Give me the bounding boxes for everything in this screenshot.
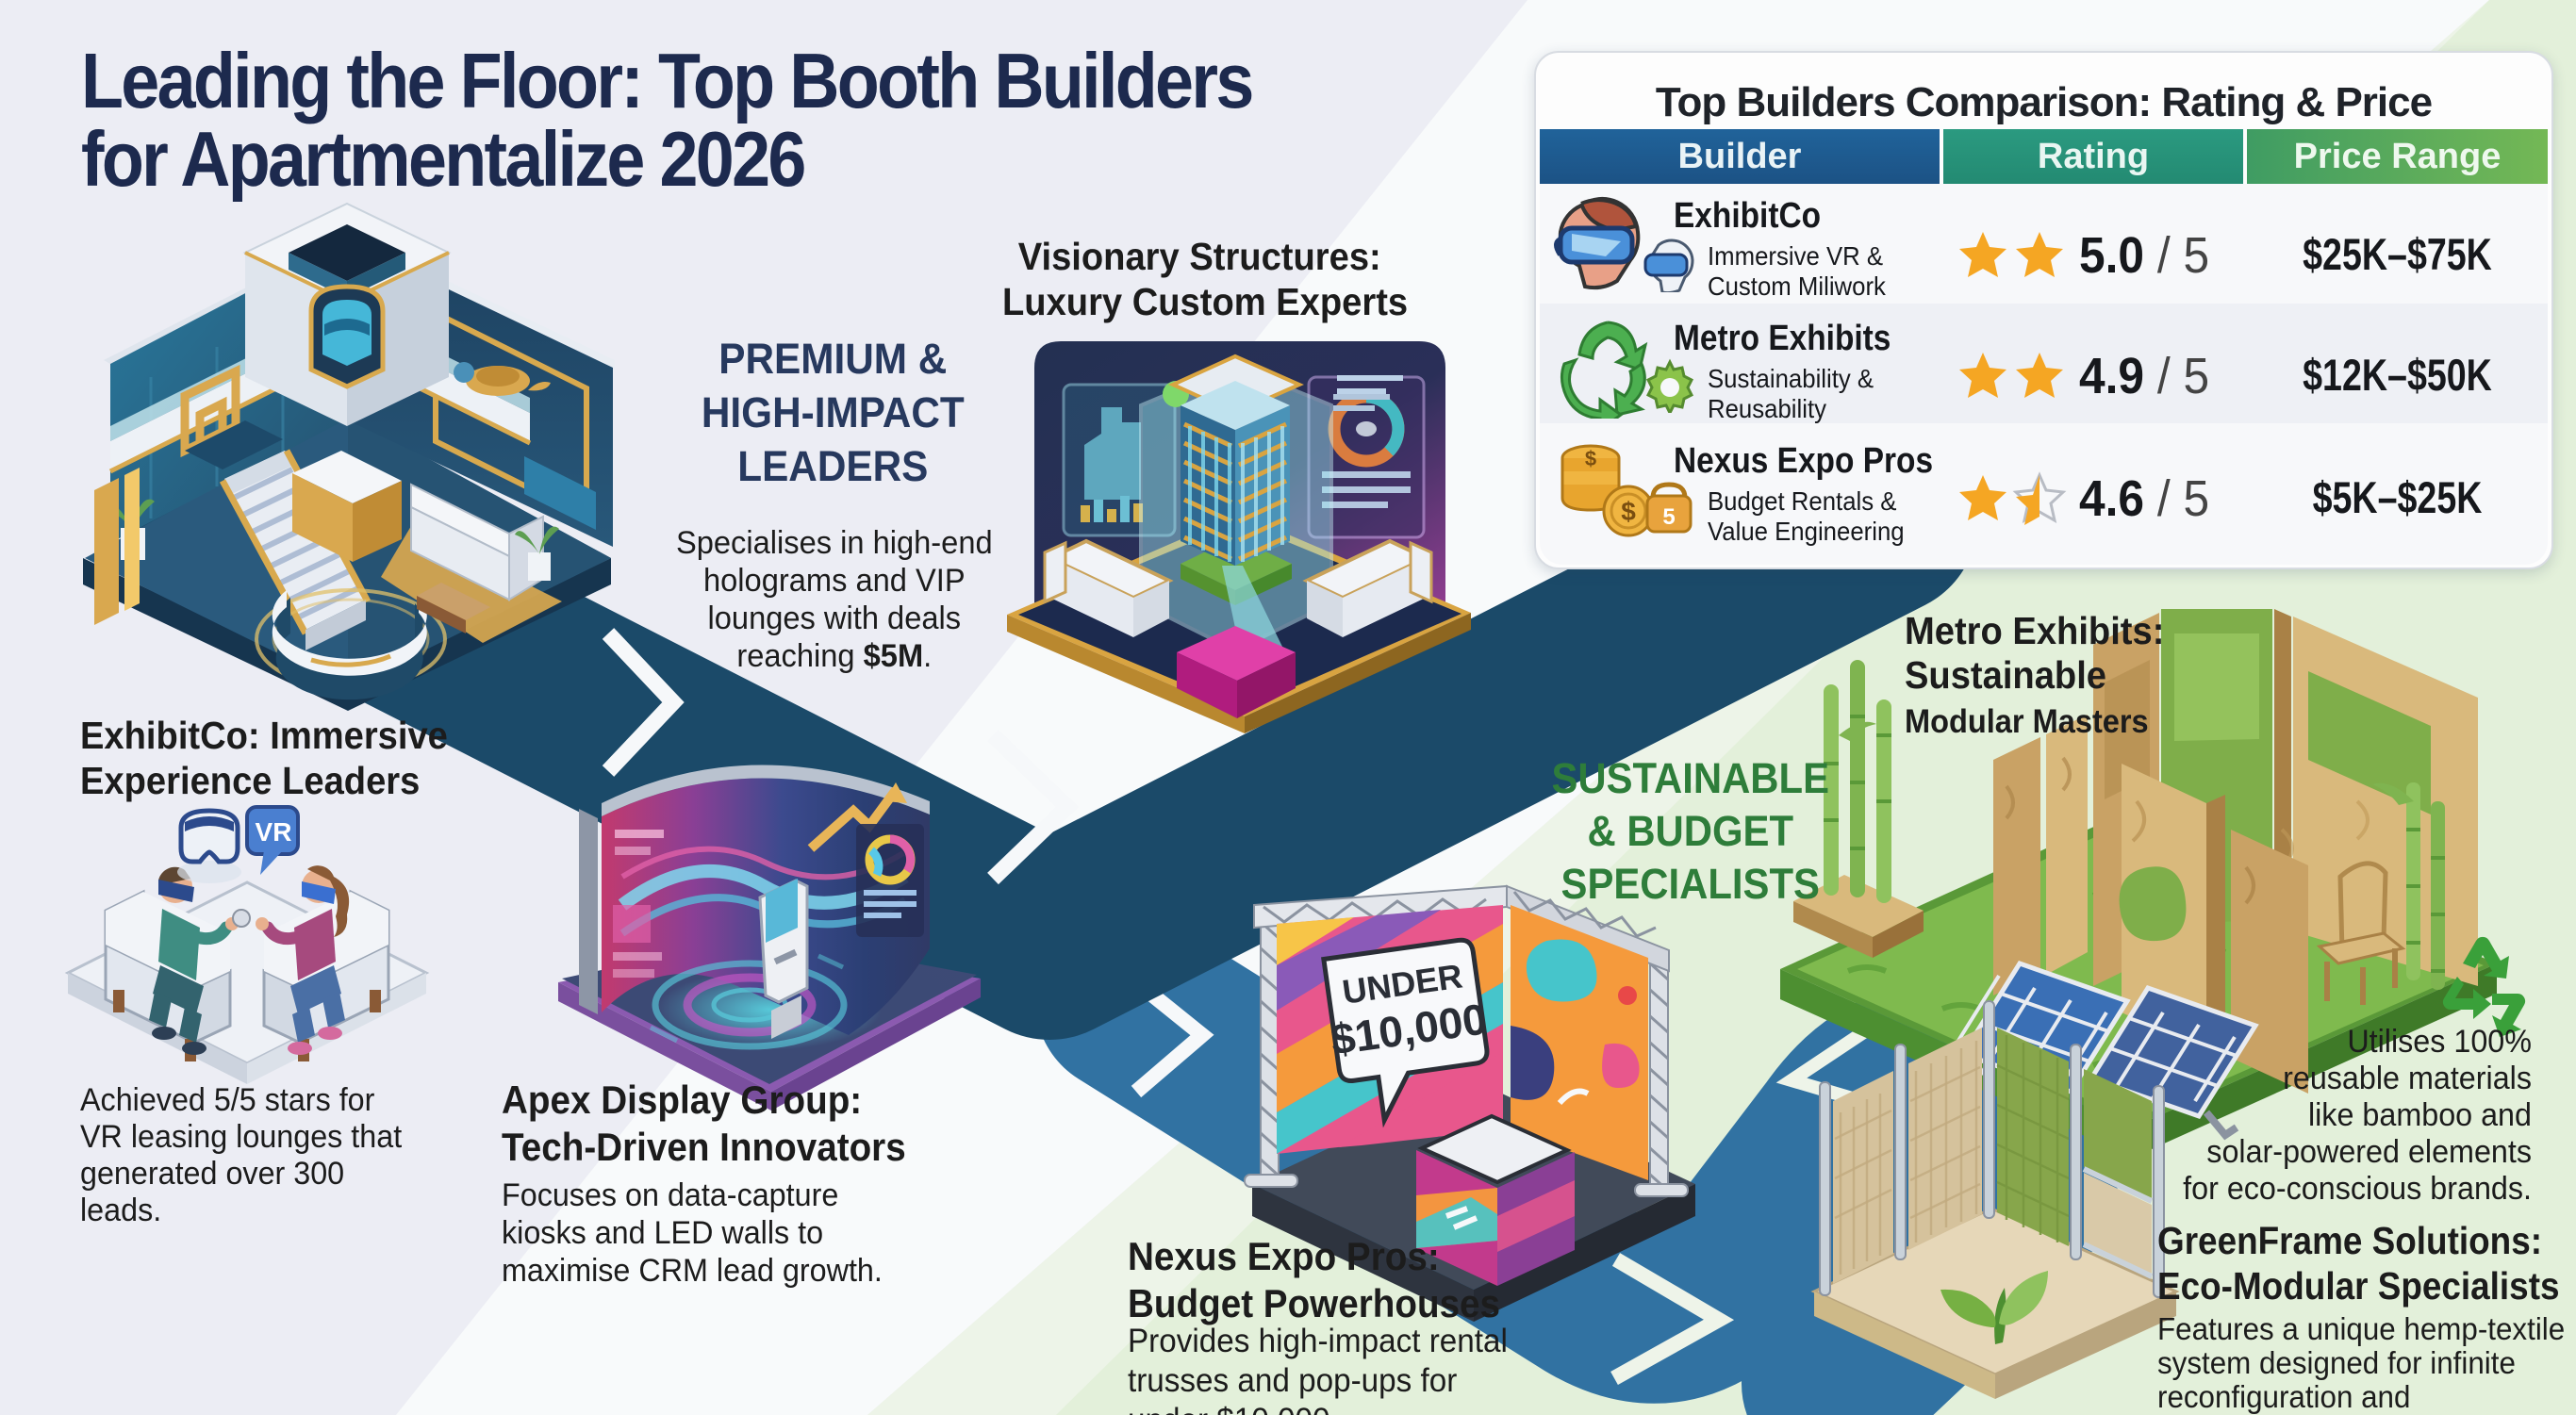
svg-text:$: $ — [1621, 497, 1636, 526]
svg-text:$: $ — [1585, 447, 1596, 470]
svg-text:VR: VR — [256, 817, 292, 847]
svg-text:5: 5 — [1662, 504, 1675, 530]
